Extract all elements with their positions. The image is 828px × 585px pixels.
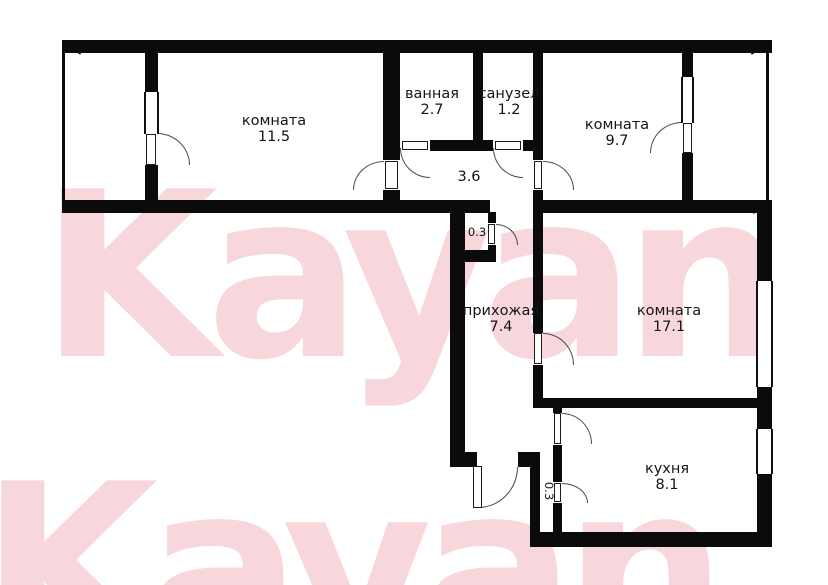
wall [145,165,158,200]
balcony-door-leaf [146,134,156,165]
door-leaf [402,141,428,150]
wall [530,532,772,547]
room-area: 17.1 [599,319,739,335]
room-area: 9.7 [547,133,687,149]
wall [383,190,400,202]
room-name: кухня [597,461,737,477]
room-label-11-5: комната 11.5 [204,113,344,145]
door-leaf [385,161,398,189]
wall [553,503,562,532]
balcony-wall [62,40,65,212]
window [144,92,159,134]
wall [533,200,772,213]
room-name: комната [204,113,344,129]
wall [682,53,693,77]
room-area: 1.2 [469,102,549,118]
window [756,429,773,474]
room-area: 3.6 [444,169,494,185]
wall [757,386,772,430]
door-leaf [554,413,561,444]
door-arc [157,133,190,165]
room-area: 0.3 [542,482,556,500]
door-leaf [534,333,542,364]
room-label-closet: 0.3 [457,226,497,238]
room-label-shaft: 0.3 [543,477,555,505]
room-name: ванная [392,86,472,102]
wall [682,153,693,200]
room-area: 2.7 [392,102,472,118]
room-label-corridor: 3.6 [444,169,494,185]
room-area: 0.3 [457,226,497,238]
room-label-bathroom: ванная 2.7 [392,86,472,118]
room-area: 8.1 [597,477,737,493]
wall [450,452,477,467]
room-label-kitchen: кухня 8.1 [597,461,737,493]
floor-plan: Kayan Kayan [0,0,828,585]
room-name: комната [547,117,687,133]
room-label-hall: прихожая 7.4 [431,303,571,335]
wall [488,212,496,223]
room-name: санузел [469,86,549,102]
wall [450,250,496,262]
room-label-9-7: комната 9.7 [547,117,687,149]
wall [430,140,493,151]
wall [518,452,540,467]
door-leaf [495,141,521,150]
wall [757,213,772,282]
entrance-door-leaf [473,466,482,508]
window [756,281,773,387]
room-label-toilet: санузел 1.2 [469,86,549,118]
wall [62,200,490,213]
wall [62,40,772,53]
room-name: комната [599,303,739,319]
room-label-17-1: комната 17.1 [599,303,739,335]
room-name: прихожая [431,303,571,319]
room-area: 11.5 [204,129,344,145]
wall [145,53,158,92]
room-area: 7.4 [431,319,571,335]
door-leaf [534,161,542,189]
door-arc [562,413,592,444]
wall [533,398,772,408]
balcony-wall [766,43,769,203]
